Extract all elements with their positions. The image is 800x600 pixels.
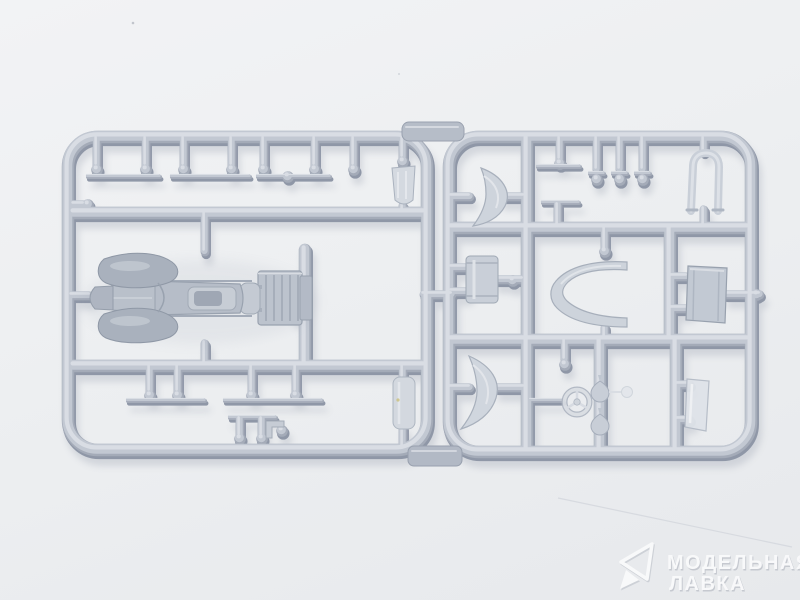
watermark: МОДЕЛЬНАЯ МОДЕЛЬНАЯ ЛАВКА ЛАВКА [620,544,800,597]
boat-tail-shell-part [551,262,627,327]
watermark-line2: ЛАВКА [669,573,746,595]
window-glass-panel-part [685,379,709,431]
watermark-line1: МОДЕЛЬНАЯ [667,552,800,574]
paper-plane-icon [620,544,653,591]
front-fender-crescent-part [473,168,507,226]
cargo-box-part [686,266,727,323]
photo-stage: МОДЕЛЬНАЯ МОДЕЛЬНАЯ ЛАВКА ЛАВКА [0,0,800,600]
fuel-tank-box-part [466,256,498,303]
surface-scratch [558,498,792,547]
steering-wheel-part [565,390,590,415]
muffler-part [393,377,415,429]
sprue-photo: МОДЕЛЬНАЯ МОДЕЛЬНАЯ ЛАВКА ЛАВКА [0,0,800,600]
car-body-part [82,253,318,344]
radiator-part [392,166,415,204]
dust-specks [132,22,400,75]
